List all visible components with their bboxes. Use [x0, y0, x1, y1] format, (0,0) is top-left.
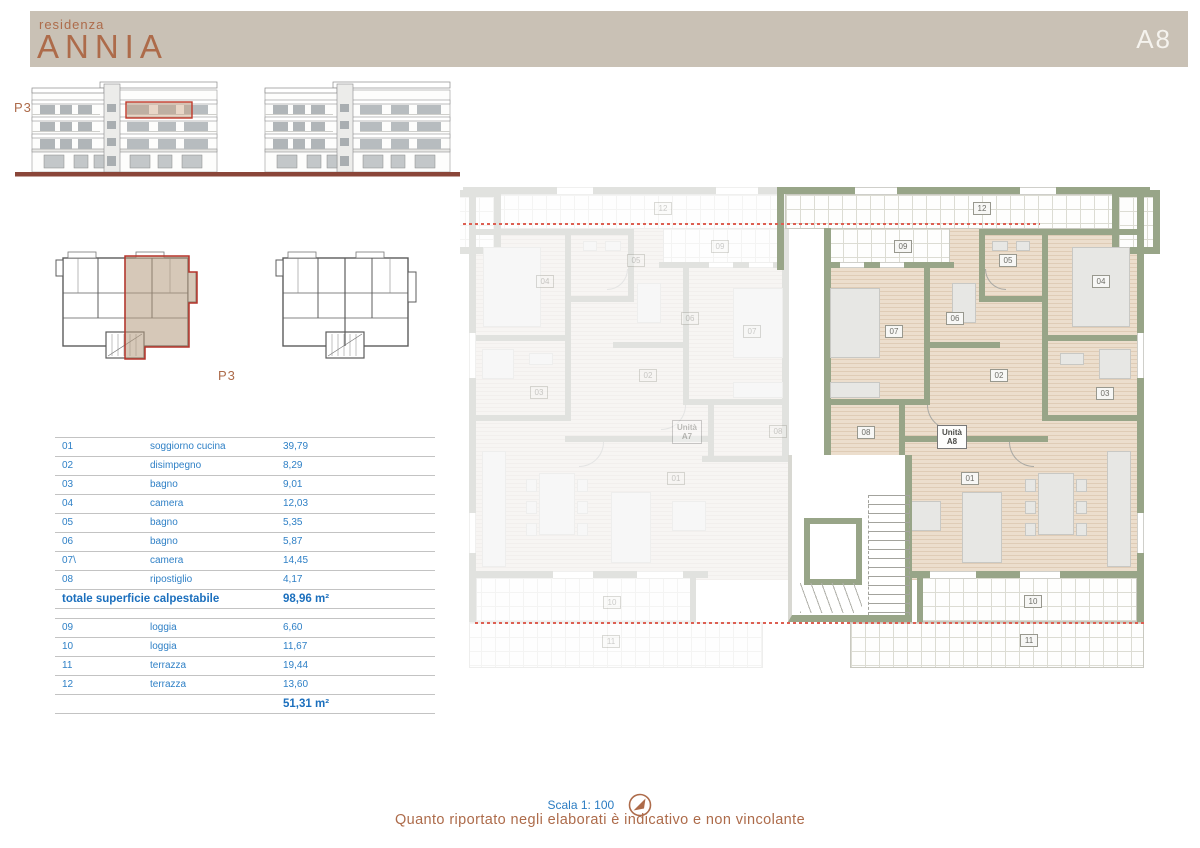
table-row: 08 ripostiglio 4,17 [55, 570, 435, 589]
wall [565, 229, 571, 421]
exterior-area-table: 09 loggia 6,60 10 loggia 11,67 11 terraz… [55, 618, 435, 714]
wc-fixture [1016, 241, 1030, 251]
room-number-label: 02 [639, 369, 657, 382]
room-number-label: 02 [990, 369, 1008, 382]
table-row: 05 bagno 5,35 [55, 513, 435, 532]
window-opening [749, 262, 773, 268]
table-row: 10 loggia 11,67 [55, 637, 435, 656]
room-number: 04 [62, 495, 73, 513]
wall [683, 262, 689, 405]
table-row: 07\ camera 14,45 [55, 551, 435, 570]
room-number-label: 09 [894, 240, 912, 253]
total-label: totale superficie calpestabile [62, 590, 219, 609]
wall [777, 187, 784, 270]
bed [733, 288, 783, 358]
room-area: 9,01 [283, 476, 302, 494]
wall [469, 335, 571, 341]
kitchen-island [907, 501, 941, 531]
shower [482, 349, 514, 379]
table-row: 03 bagno 9,01 [55, 475, 435, 494]
room-area: 19,44 [283, 657, 308, 675]
sink [529, 353, 553, 365]
shower [637, 283, 661, 323]
room-number: 01 [62, 438, 73, 456]
room-number: 06 [62, 533, 73, 551]
window-opening [469, 333, 476, 378]
window-opening [1020, 187, 1056, 195]
window-opening [1137, 333, 1144, 378]
room-number: 05 [62, 514, 73, 532]
window-opening [469, 513, 476, 553]
bed [483, 247, 541, 327]
window-opening [855, 187, 897, 195]
window-opening [840, 262, 864, 268]
chair [1076, 501, 1087, 514]
brand-title: ANNIA [37, 28, 168, 66]
room-number-label: 06 [946, 312, 964, 325]
window-opening [880, 262, 904, 268]
wall [1042, 415, 1144, 421]
table-row: 06 bagno 5,87 [55, 532, 435, 551]
room-area: 14,45 [283, 552, 308, 570]
room-number-label: 06 [681, 312, 699, 325]
chair [1025, 523, 1036, 536]
wall [924, 342, 1000, 348]
room-area: 13,60 [283, 676, 308, 694]
wall [690, 577, 696, 622]
room-number: 12 [62, 676, 73, 694]
wall [469, 229, 634, 235]
wall [469, 415, 571, 421]
room-area: 5,35 [283, 514, 302, 532]
room-number-label: 10 [603, 596, 621, 609]
chair [1025, 501, 1036, 514]
room-name: bagno [150, 514, 178, 532]
room-area: 5,87 [283, 533, 302, 551]
header-band: residenza ANNIA A8 [30, 11, 1188, 67]
wc-fixture [605, 241, 621, 251]
table-row: 11 terrazza 19,44 [55, 656, 435, 675]
window-opening [1020, 571, 1060, 579]
window-opening [637, 571, 683, 579]
wall [469, 190, 476, 622]
chair [577, 479, 588, 492]
red-dotted-line-bottom [475, 622, 1145, 624]
room-area: 8,29 [283, 457, 302, 475]
table-row: 01 soggiorno cucina 39,79 [55, 437, 435, 456]
room-number-label: 01 [667, 472, 685, 485]
room-number: 02 [62, 457, 73, 475]
stair-core [788, 455, 912, 622]
unit-a8-label: Unità A8 [937, 425, 967, 449]
chair [577, 501, 588, 514]
kitchen-counter [482, 451, 506, 567]
keyplan-highlighted [48, 248, 203, 366]
stair-flight [868, 495, 910, 615]
wall [702, 456, 789, 462]
kitchen-island [672, 501, 706, 531]
room-number-label: 09 [711, 240, 729, 253]
total-area: 51,31 m² [283, 695, 329, 714]
highlighted-unit-keyplan [125, 256, 197, 359]
scale-text: Scala 1: 100 [547, 798, 614, 812]
keyplan-floor-label: P3 [218, 368, 236, 383]
room-number-label: 03 [530, 386, 548, 399]
sink [1060, 353, 1084, 365]
room-number-label: 01 [961, 472, 979, 485]
room-number: 08 [62, 571, 73, 589]
room-name: camera [150, 495, 183, 513]
room-area: 4,17 [283, 571, 302, 589]
room-name: loggia [150, 638, 177, 656]
room-number: 11 [62, 657, 72, 675]
room-name: terrazza [150, 676, 186, 694]
room-number: 03 [62, 476, 73, 494]
plan-sheet: residenza ANNIA A8 P3 [0, 0, 1200, 848]
window-opening [716, 187, 758, 195]
table-row: 12 terrazza 13,60 [55, 675, 435, 694]
exterior-rows: 09 loggia 6,60 10 loggia 11,67 11 terraz… [55, 618, 435, 694]
room-number-label: 07 [743, 325, 761, 338]
red-dotted-line-top [463, 223, 1040, 225]
wardrobe [830, 382, 880, 398]
chair [577, 523, 588, 536]
room-number-label: 08 [857, 426, 875, 439]
room-number-label: 12 [654, 202, 672, 215]
room-area: 12,03 [283, 495, 308, 513]
room-number-label: 11 [1020, 634, 1038, 647]
exterior-total-row: 51,31 m² [55, 694, 435, 714]
stair-flight-lower [800, 583, 862, 613]
room-number-label: 07 [885, 325, 903, 338]
window-opening [553, 571, 593, 579]
wall [613, 342, 689, 348]
sofa [962, 492, 1002, 563]
ground-line [15, 172, 460, 177]
highlighted-unit-elevation [126, 102, 192, 118]
room-name: bagno [150, 476, 178, 494]
chair [526, 501, 537, 514]
window-opening [930, 571, 976, 579]
wall [565, 296, 634, 302]
wall [917, 577, 923, 622]
terrazza-11-floor [850, 622, 1144, 668]
room-name: ripostiglio [150, 571, 192, 589]
wall [979, 229, 1144, 235]
terrace-parapet [460, 190, 501, 254]
wall [1137, 190, 1144, 622]
wardrobe [733, 382, 783, 398]
room-area: 39,79 [283, 438, 308, 456]
table-row: 09 loggia 6,60 [55, 618, 435, 637]
wc-fixture [992, 241, 1008, 251]
interior-total-row: totale superficie calpestabile 98,96 m² [55, 589, 435, 609]
table-row: 04 camera 12,03 [55, 494, 435, 513]
room-area: 6,60 [283, 619, 302, 637]
main-floor-plan: 1209050406070203080110111209050406070203… [460, 183, 1200, 675]
unit-badge: A8 [1136, 24, 1172, 55]
wall [683, 399, 789, 405]
wall [979, 229, 985, 302]
room-name: bagno [150, 533, 178, 551]
terrace-parapet [1112, 190, 1160, 254]
room-name: disimpegno [150, 457, 201, 475]
disclaimer-text: Quanto riportato negli elaborati è indic… [0, 812, 1200, 828]
room-number-label: 08 [769, 425, 787, 438]
wall [899, 404, 905, 462]
chair [1076, 523, 1087, 536]
room-number: 10 [62, 638, 73, 656]
interior-rows: 01 soggiorno cucina 39,79 02 disimpegno … [55, 437, 435, 589]
chair [1025, 479, 1036, 492]
wall [1042, 335, 1144, 341]
room-number-label: 04 [1092, 275, 1110, 288]
room-name: loggia [150, 619, 177, 637]
room-area: 11,67 [283, 638, 307, 656]
room-number-label: 05 [999, 254, 1017, 267]
window-opening [1137, 513, 1144, 553]
kitchen-counter [1107, 451, 1131, 567]
dining-table [1038, 473, 1074, 535]
sofa [611, 492, 651, 563]
bed [830, 288, 880, 358]
shower [1099, 349, 1131, 379]
room-name: soggiorno cucina [150, 438, 226, 456]
unit-a7-label: Unità A7 [672, 420, 702, 444]
wc-fixture [583, 241, 597, 251]
room-number-label: 03 [1096, 387, 1114, 400]
interior-area-table: 01 soggiorno cucina 39,79 02 disimpegno … [55, 437, 435, 609]
table-row: 02 disimpegno 8,29 [55, 456, 435, 475]
keyplan-plain [268, 248, 423, 366]
chair [526, 479, 537, 492]
loggia-09-floor [828, 228, 950, 266]
wall [924, 262, 930, 405]
total-area: 98,96 m² [283, 590, 329, 609]
wall [777, 187, 1150, 194]
elevator-shaft [804, 518, 862, 585]
dining-table [539, 473, 575, 535]
window-opening [709, 262, 733, 268]
wall [824, 399, 930, 405]
wall [708, 404, 714, 462]
room-name: camera [150, 552, 183, 570]
room-number-label: 10 [1024, 595, 1042, 608]
wall [1042, 229, 1048, 421]
building-elevation-drawing [15, 76, 460, 178]
loggia-10-floor [476, 577, 693, 622]
wall [979, 296, 1048, 302]
chair [1076, 479, 1087, 492]
room-number-label: 12 [973, 202, 991, 215]
chair [526, 523, 537, 536]
room-name: terrazza [150, 657, 186, 675]
room-number-label: 04 [536, 275, 554, 288]
room-number-label: 05 [627, 254, 645, 267]
room-number: 09 [62, 619, 73, 637]
room-number: 07\ [62, 552, 76, 570]
window-opening [557, 187, 593, 195]
room-number-label: 11 [602, 635, 620, 648]
